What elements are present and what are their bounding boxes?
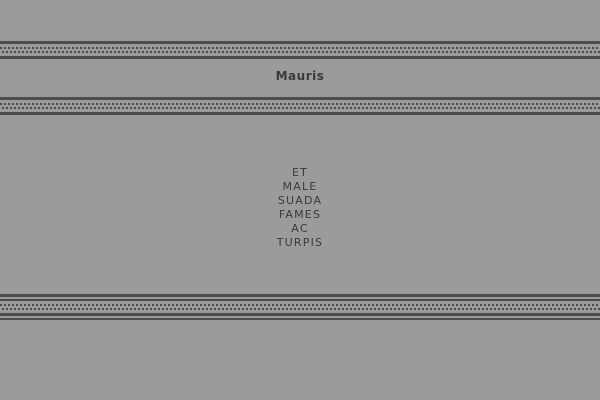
page-title: Mauris xyxy=(0,68,600,84)
page: Mauris ET MALE SUADA FAMES AC TURPIS xyxy=(0,0,600,400)
body-text-line: MALE xyxy=(0,180,600,194)
divider-ornament-bottom xyxy=(0,294,600,320)
body-text-line: FAMES xyxy=(0,208,600,222)
body-text-line: SUADA xyxy=(0,194,600,208)
divider-solid-line xyxy=(0,56,600,59)
body-text-line: AC xyxy=(0,222,600,236)
divider-ornament-top xyxy=(0,41,600,59)
body-text-line: ET xyxy=(0,166,600,180)
divider-ornament-under-title xyxy=(0,97,600,115)
body-text-line: TURPIS xyxy=(0,236,600,250)
body-text-block: ET MALE SUADA FAMES AC TURPIS xyxy=(0,166,600,250)
divider-solid-line xyxy=(0,318,600,320)
divider-solid-line xyxy=(0,112,600,115)
